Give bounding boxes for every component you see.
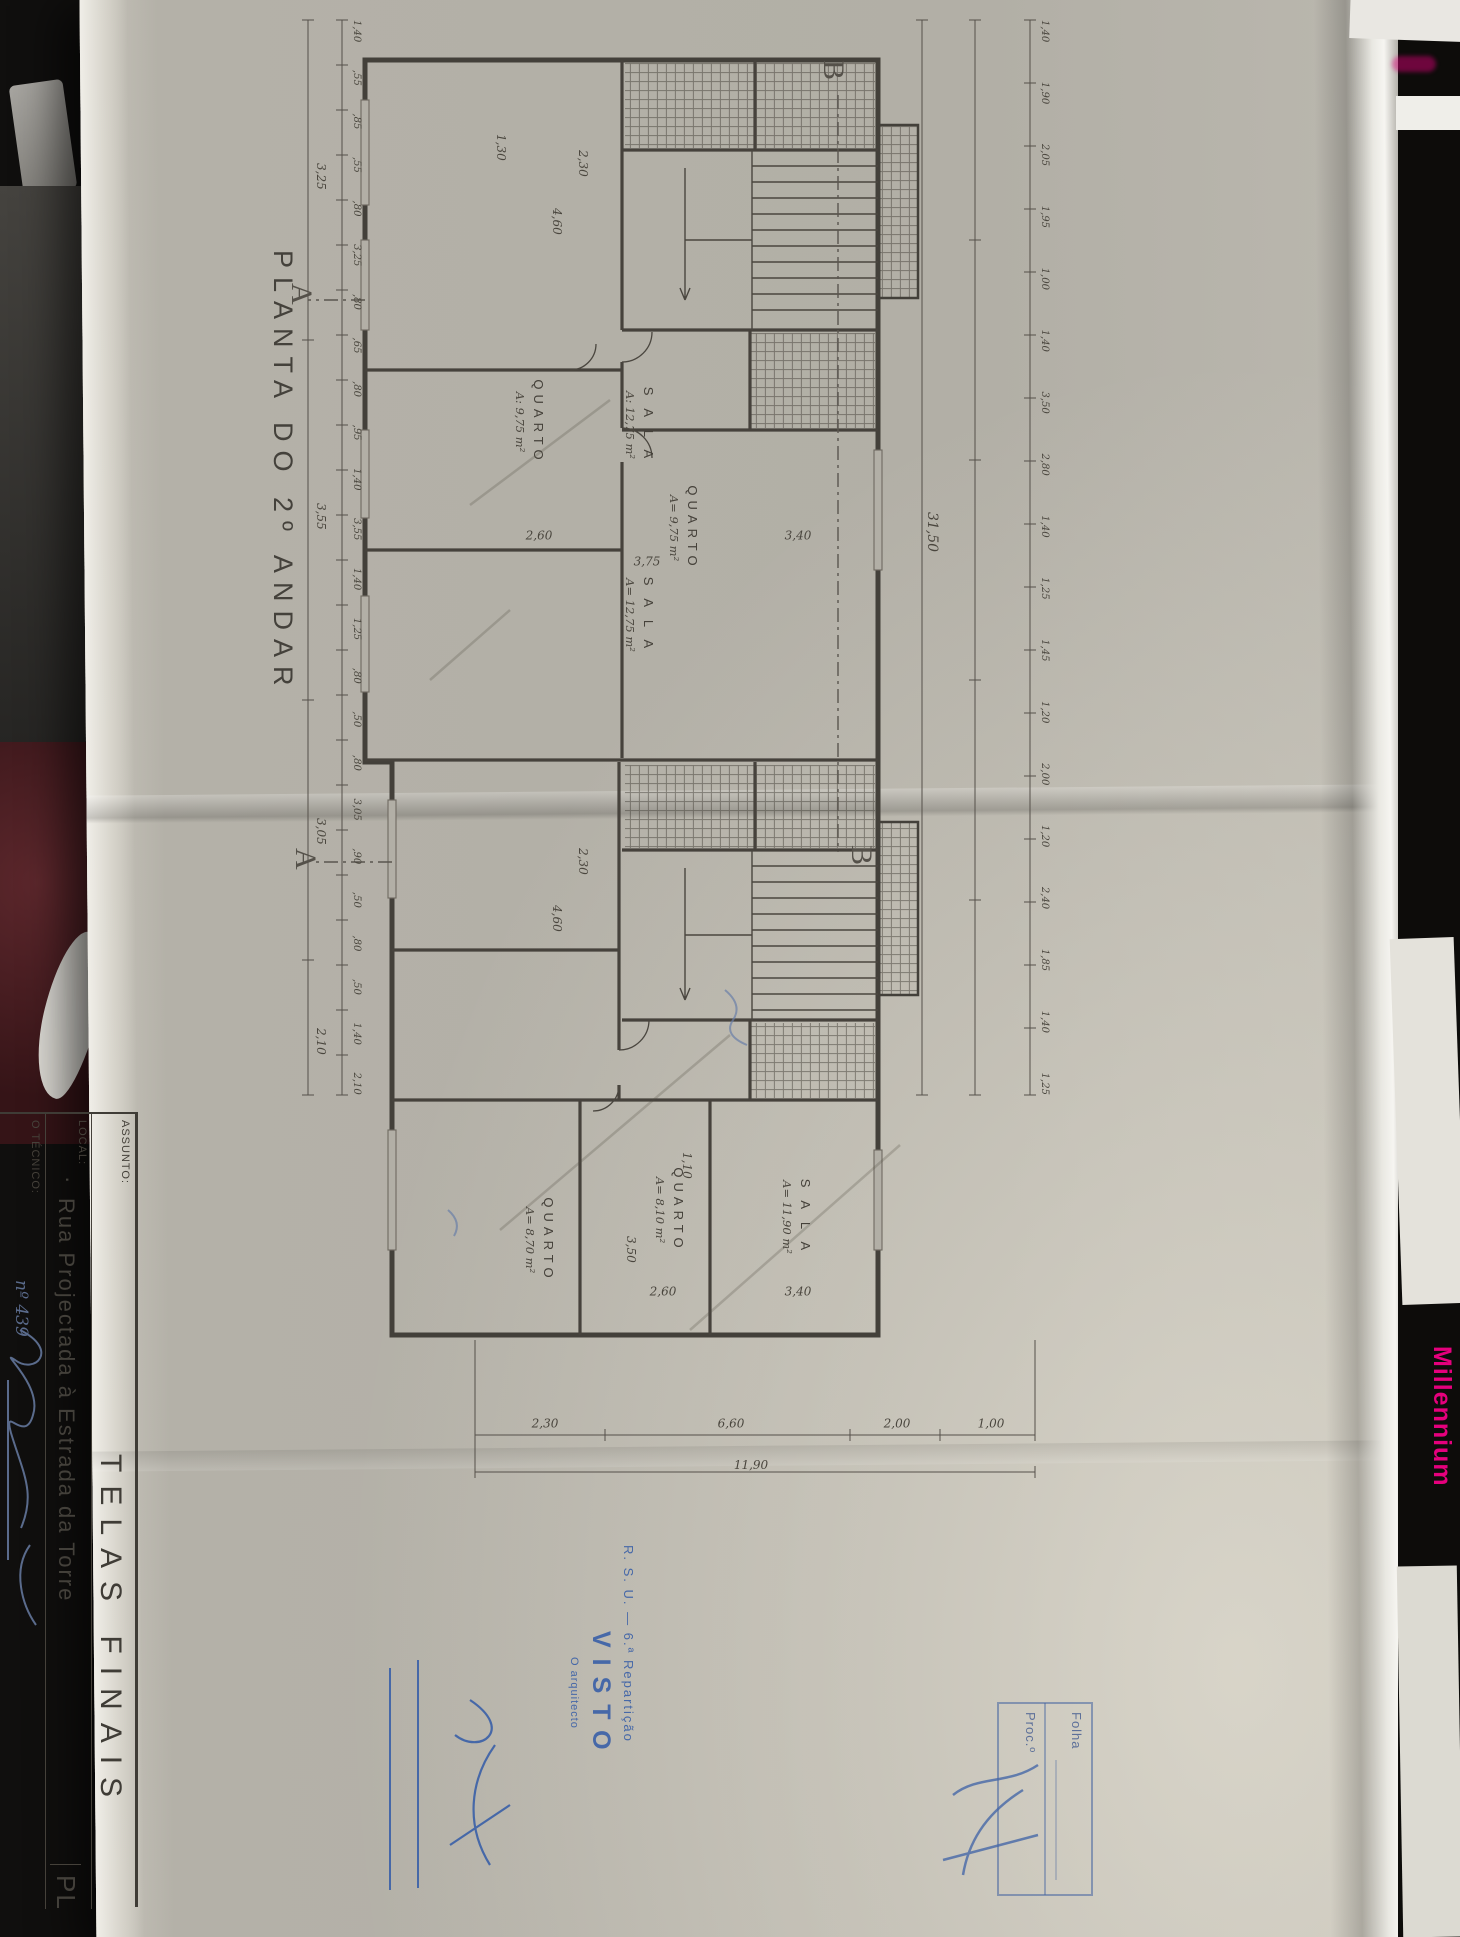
tecnico-number: nº 439	[11, 1280, 31, 1337]
bottom-dimension-chain: 1,40,55,85,55,803,25,80,65,80,951,403,55…	[351, 20, 362, 1095]
local-value: Rua Projectada à Estrada da Torre	[53, 1198, 79, 1602]
assunto-value: TELAS FINAIS	[93, 1454, 127, 1810]
dimension-value: 1,40	[1039, 515, 1050, 537]
dimension-value: 1,40	[351, 1023, 362, 1045]
dimension-value: 1,40	[351, 468, 362, 490]
room-dimension: 3,75	[634, 554, 661, 568]
background-paper-piece	[1349, 0, 1460, 42]
room-dimension: 2,60	[650, 1284, 677, 1298]
dimension-value: 1,40	[1039, 1011, 1050, 1033]
dimension-value: ,65	[351, 338, 362, 354]
millennium-brand-text: Millennium	[1427, 1346, 1456, 1487]
dimension-value: 1,40	[351, 20, 362, 42]
proc-label: Proc.º	[1023, 1712, 1038, 1753]
plan-title: PLANTA DO 2º ANDAR	[267, 250, 298, 694]
inner-walls	[365, 60, 878, 1335]
room-label-sala: S A L A A= 11,90 m²	[778, 1162, 815, 1272]
bottom-span-dimension: 2,10	[314, 1028, 328, 1055]
blue-pencil-marks	[448, 990, 747, 1236]
assunto-label: ASSUNTO:	[119, 1120, 131, 1184]
background-paper-piece	[1390, 937, 1460, 1305]
stamp-role-line: O arquitecto	[568, 1657, 580, 1903]
stair-dimension: 2,30	[576, 848, 590, 875]
dimension-value: 2,05	[1039, 144, 1050, 166]
photo-of-floor-plan: Millennium	[0, 0, 1460, 1937]
section-marker-a: A	[288, 848, 322, 870]
dimension-value: ,80	[351, 381, 362, 397]
dimension-value: ,80	[351, 201, 362, 217]
title-block-row-local: LOCAL: · Rua Projectada à Estrada da Tor…	[45, 1114, 91, 1909]
visto-stamp: R. S. U. — 6.ª Repartição VISTO O arquit…	[568, 1545, 636, 1903]
room-dimension: 2,60	[526, 528, 553, 542]
bottom-span-dimension: 3,05	[314, 818, 328, 845]
proc-number-scribble	[943, 1765, 1038, 1875]
dimension-value: 2,80	[1039, 453, 1050, 475]
dimension-value: 1,20	[1039, 825, 1050, 847]
section-marker-a: A	[284, 283, 318, 305]
bottom-span-dimension: 3,25	[314, 163, 328, 190]
drawing-code-cut: PL	[50, 1864, 81, 1911]
dimension-value: 1,40	[351, 568, 362, 590]
dimension-value: ,95	[351, 425, 362, 441]
dimension-value: 1,40	[1039, 20, 1050, 42]
pink-smudge	[1392, 56, 1436, 72]
room-name: QUARTO	[539, 1190, 559, 1290]
background-paper-piece	[1397, 1566, 1460, 1937]
room-label-quarto: QUARTO A= 9,75 m²	[665, 478, 702, 578]
drawing-content: PLANTA DO 2º ANDAR B B A A S A L A A: 12…	[0, 0, 1270, 1900]
stamp-signature	[390, 1660, 510, 1890]
dimension-value: 3,25	[351, 244, 362, 266]
right-total-dimension: 11,90	[734, 1458, 768, 1472]
section-marker-b: B	[844, 845, 878, 865]
dimension-value: 1,25	[1039, 577, 1050, 599]
dimension-value: 3,50	[1039, 392, 1050, 414]
top-dimension-chain: 1,401,902,051,951,001,403,502,801,401,25…	[1039, 20, 1050, 1095]
folha-label: Folha	[1069, 1712, 1084, 1750]
stamp-department-line: R. S. U. — 6.ª Repartição	[621, 1545, 636, 1903]
section-marker-b: B	[816, 60, 850, 80]
dimension-lines-top	[916, 20, 1036, 1095]
stamp-visto-text: VISTO	[586, 1631, 615, 1903]
room-label-sala: S A L A A: 12,75 m²	[621, 370, 658, 480]
dimension-value: ,85	[351, 113, 362, 129]
room-area: A= 12,75 m²	[621, 560, 638, 670]
room-area: A= 9,75 m²	[665, 478, 682, 578]
outer-walls	[365, 60, 918, 1335]
room-area: A: 12,75 m²	[621, 370, 638, 480]
dimension-value: 2,00	[1039, 763, 1050, 785]
room-label-quarto: QUARTO A: 9,75 m²	[511, 372, 548, 472]
room-dimension: 3,40	[785, 528, 812, 542]
dimension-value: 1,90	[1039, 82, 1050, 104]
dimension-value: 3,55	[351, 518, 362, 540]
right-chain-dimension: 1,00	[978, 1416, 1005, 1430]
stairs	[680, 150, 878, 1020]
tecnico-label: O TÉCNICO:	[29, 1120, 41, 1194]
dimension-value: ,50	[351, 892, 362, 908]
local-label: LOCAL:	[76, 1120, 88, 1165]
right-chain-dimension: 2,00	[884, 1416, 911, 1430]
dimension-value: 1,95	[1039, 206, 1050, 228]
right-chain-dimension: 6,60	[718, 1416, 745, 1430]
room-dimension: 3,50	[624, 1236, 638, 1263]
dimension-value: 1,00	[1039, 268, 1050, 290]
room-name: QUARTO	[529, 372, 549, 472]
dimension-value: 1,25	[351, 618, 362, 640]
title-block-row-assunto: ASSUNTO: TELAS FINAIS	[91, 1114, 135, 1909]
title-block-row-tecnico: O TÉCNICO: nº 439	[0, 1114, 45, 1909]
section-lines	[308, 95, 838, 862]
dimension-value: 1,85	[1039, 949, 1050, 971]
stair-dimension: 2,30	[576, 150, 590, 177]
dimension-value: ,80	[351, 668, 362, 684]
room-name: S A L A	[639, 370, 659, 480]
room-dimension: 3,40	[785, 1284, 812, 1298]
dimension-value: 3,05	[351, 798, 362, 820]
room-area: A= 11,90 m²	[778, 1162, 795, 1272]
dimension-value: ,90	[351, 848, 362, 864]
room-dimension: 1,10	[680, 1152, 694, 1179]
tiled-floor-hatching	[625, 63, 918, 1098]
room-area: A= 8,70 m²	[521, 1190, 538, 1290]
title-block: ASSUNTO: TELAS FINAIS LOCAL: · Rua Proje…	[0, 1112, 138, 1907]
room-dimension: 1,30	[494, 134, 508, 161]
stair-dimension: 4,60	[550, 208, 564, 235]
dimension-value: ,80	[351, 755, 362, 771]
dimension-value: 1,20	[1039, 701, 1050, 723]
right-chain-dimension: 2,30	[532, 1416, 559, 1430]
room-area: A: 9,75 m²	[511, 372, 528, 472]
dimension-value: ,50	[351, 711, 362, 727]
room-name: QUARTO	[683, 478, 703, 578]
dimension-value: 2,40	[1039, 887, 1050, 909]
dimension-value: ,80	[351, 294, 362, 310]
top-total-dimension: 31,50	[924, 512, 940, 552]
room-name: S A L A	[796, 1162, 816, 1272]
dimension-value: ,55	[351, 70, 362, 86]
dimension-value: 1,45	[1039, 639, 1050, 661]
room-area: A= 8,10 m²	[651, 1160, 668, 1260]
dimension-value: 1,40	[1039, 330, 1050, 352]
dimension-value: ,80	[351, 935, 362, 951]
background-paper-piece	[1396, 96, 1460, 130]
bottom-span-dimension: 3,55	[314, 503, 328, 530]
dimension-value: 2,10	[351, 1072, 362, 1094]
room-label-quarto: QUARTO A= 8,70 m²	[521, 1190, 558, 1290]
room-label-sala: S A L A A= 12,75 m²	[621, 560, 658, 670]
local-bullet: ·	[55, 1176, 81, 1185]
stair-dimension: 4,60	[550, 905, 564, 932]
dimension-value: ,55	[351, 157, 362, 173]
room-name: S A L A	[639, 560, 659, 670]
dimension-value: 1,25	[1039, 1073, 1050, 1095]
dimension-value: ,50	[351, 979, 362, 995]
